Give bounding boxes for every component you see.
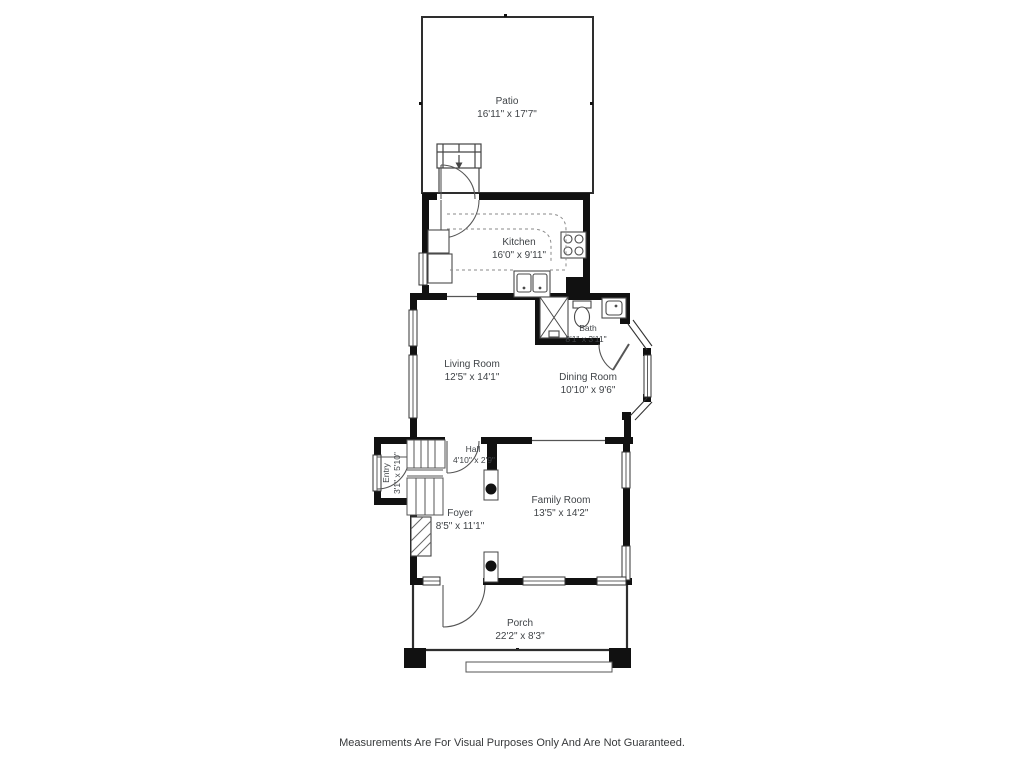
entry-dims: 3'1" x 5'10"	[392, 452, 402, 494]
kitchen-dims: 16'0" x 9'11"	[492, 250, 547, 261]
foyer-dims: 8'5" x 11'1"	[436, 521, 485, 532]
bath-dims: 8'1" x 3'11"	[565, 334, 606, 344]
porch-post-icon	[404, 648, 426, 668]
kitchen-label: Kitchen	[502, 237, 535, 248]
patio-dims: 16'11" x 17'7"	[477, 109, 537, 120]
cabinet-icon	[428, 254, 452, 283]
patio-label: Patio	[496, 96, 519, 107]
bath-sink-basin-icon	[606, 301, 622, 315]
post-icon	[486, 484, 497, 495]
foyer-label: Foyer	[447, 508, 473, 519]
bath-label: Bath	[579, 323, 597, 333]
dining-room-dims: 10'10" x 9'6"	[561, 385, 616, 396]
floor-plan-canvas: Patio 16'11" x 17'7" Kitchen 16'0" x 9'1…	[0, 0, 1024, 768]
family-room-dims: 13'5" x 14'2"	[534, 508, 589, 519]
fireplace-icon	[411, 517, 431, 556]
bath-faucet-dot-icon	[615, 305, 618, 308]
disclaimer-text: Measurements Are For Visual Purposes Onl…	[339, 737, 685, 749]
shower-drain-icon	[549, 331, 559, 337]
porch-label: Porch	[507, 618, 533, 629]
bath-door-icon	[599, 344, 629, 370]
staircase-icon	[407, 440, 445, 515]
living-room-label: Living Room	[444, 359, 500, 370]
hall-label: Hall	[466, 444, 481, 454]
entry-label: Entry	[381, 462, 391, 483]
family-room-label: Family Room	[532, 495, 591, 506]
front-door-icon	[443, 585, 485, 627]
refrigerator-icon	[428, 230, 449, 253]
dining-room-label: Dining Room	[559, 372, 617, 383]
porch-dims: 22'2" x 8'3"	[495, 631, 545, 642]
porch-step-icon	[466, 662, 612, 672]
entry-label-group: Entry 3'1" x 5'10"	[381, 452, 402, 494]
floor-plan-page: Patio 16'11" x 17'7" Kitchen 16'0" x 9'1…	[0, 0, 1024, 768]
post-icon	[486, 561, 497, 572]
living-room-dims: 12'5" x 14'1"	[445, 372, 500, 383]
structural-posts	[484, 470, 498, 582]
hall-dims: 4'10" x 2'9"	[453, 455, 495, 465]
